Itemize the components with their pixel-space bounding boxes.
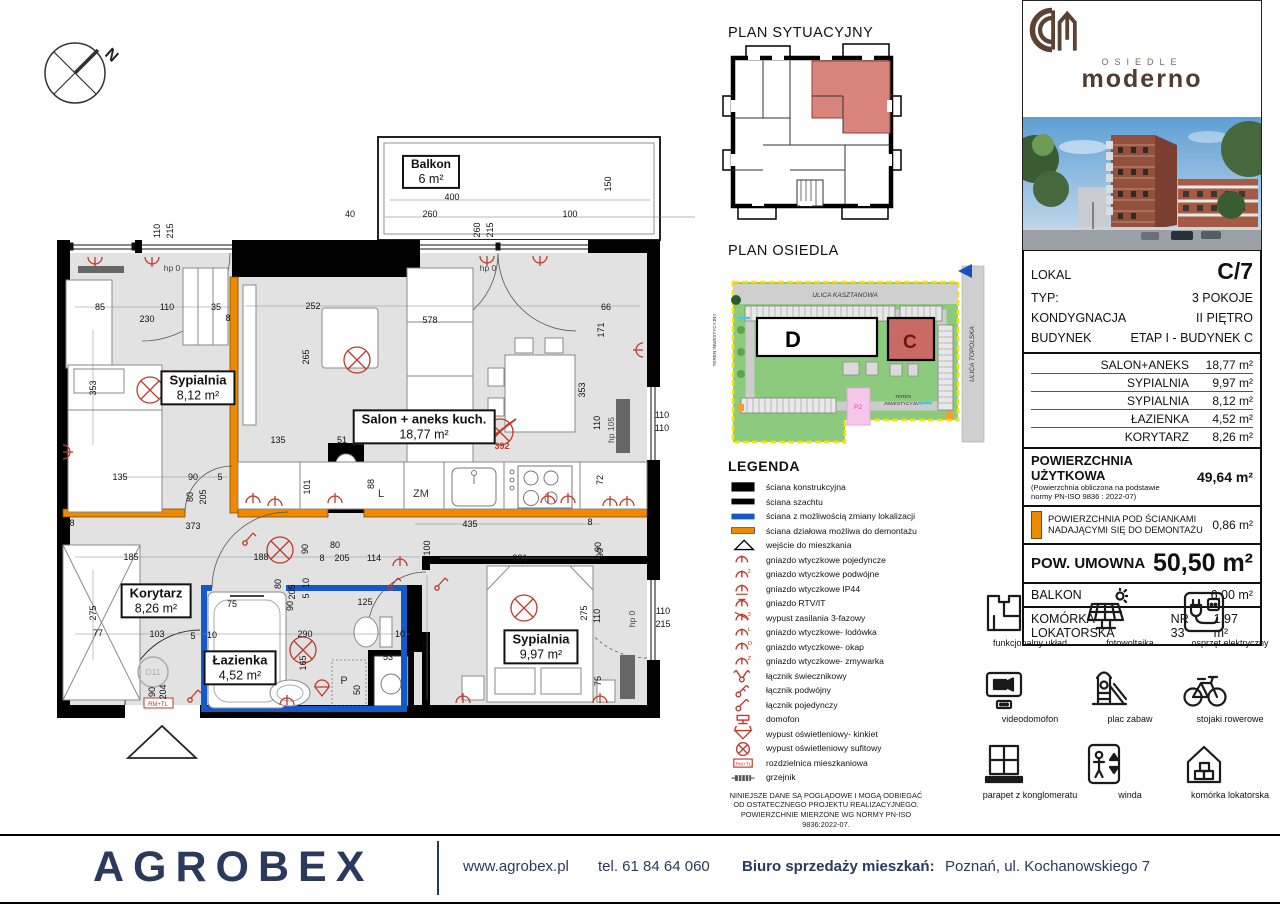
usable-area-value: 49,64 m² [1197,469,1253,485]
compass-north-label: N [101,45,121,65]
sock2-icon: 2 [728,567,758,582]
building-c-label: C [903,332,917,353]
wall-sz-icon [728,494,758,509]
room-area-row: SALON+ANEKS18,77 m² [1031,356,1253,374]
building-photo [1023,117,1261,250]
komorka-icon [1180,740,1228,788]
feature-item: winda [1080,740,1180,800]
legend-item-label: gniazdo wtyczkowe- okap [766,642,864,652]
building-d-label: D [785,327,801,352]
unit-info-row: KONDYGNACJAII PIĘTRO [1031,308,1253,328]
legend-item: ściana szachtu [728,495,933,510]
rozdz-icon: RM+TL [728,755,758,770]
contract-area-box: POW. UMOWNA 50,50 m² [1022,543,1262,584]
feature-label: winda [1080,790,1180,800]
legend-item-label: ściana konstrukcyjna [766,482,846,492]
demountable-label: POWIERZCHNIA POD ŚCIANKAMI NADAJĄCYMI SI… [1048,514,1206,537]
legend-item: łącznik pojedynczy [728,698,933,713]
unit-info-rows: LOKALC/7TYP:3 POKOJEKONDYGNACJAII PIĘTRO… [1031,255,1253,348]
video-icon [980,664,1028,712]
demountable-area-box: POWIERZCHNIA POD ŚCIANKAMI NADAJĄCYMI SI… [1022,505,1262,545]
feature-item: stojaki rowerowe [1180,664,1280,724]
plan-sytuacyjny-drawing [723,44,901,219]
room-area-name: SYPIALNIA [1127,376,1189,390]
info-value: ETAP I - BUDYNEK C [1131,331,1253,345]
agrobex-logo: AGROBEX [93,843,373,892]
room-area-row: SYPIALNIA8,12 m² [1031,392,1253,410]
wall-blue-icon [728,509,758,524]
usable-area-label: POWIERZCHNIA UŻYTKOWA [1031,453,1197,483]
teren-left-label: TEREN INWESTYCYJNY [712,314,717,367]
feature-item: videodomofon [980,664,1080,724]
room-area-row: ŁAZIENKA4,52 m² [1031,410,1253,428]
legend-item: łącznik świecznikowy [728,669,933,684]
plan-osiedla-drawing: ULICA KASZTANOWA ULICA TOPOLSKA D C [712,264,984,442]
footer-website[interactable]: www.agrobex.pl [463,858,569,875]
legend-item: wypust oświetleniowy- kinkiet [728,727,933,742]
legend-item-label: ściana działowa możliwa do demontażu [766,526,917,536]
parapet-icon [980,740,1028,788]
legend-item: 3wypust zasilania 3-fazowy [728,611,933,626]
info-label: LOKAL [1031,268,1071,282]
svg-text:L: L [748,627,751,633]
room-area-value: 4,52 m² [1189,412,1253,426]
svg-text:Z: Z [748,656,752,662]
legend-item-label: łącznik pojedynczy [766,700,838,710]
usable-area-box: POWIERZCHNIA UŻYTKOWA (Powierzchnia obli… [1022,447,1262,507]
legend-item: ściana z możliwością zmiany lokalizacji [728,509,933,524]
brand-and-photo: OSIEDLE moderno [1022,0,1262,251]
swk-icon [728,668,758,683]
sufit-icon [728,741,758,756]
demountable-value: 0,86 m² [1212,518,1253,532]
feature-item: plac zabaw [1080,664,1180,724]
info-value: II PIĘTRO [1196,311,1253,325]
wall-k-icon [728,480,758,495]
brand-name-label: moderno [1023,65,1261,94]
right-panel: OSIEDLE moderno [1022,0,1262,646]
plan-sytuacyjny-title: PLAN SYTUACYJNY [728,25,873,41]
feature-label: fotowoltaika [1080,638,1180,648]
feature-label: funkcjonalny układ [980,638,1080,648]
sw2-icon [728,683,758,698]
feature-item: fotowoltaika [1080,588,1180,648]
legend-item-label: gniazdo wtyczkowe IP44 [766,584,860,594]
legend-item-label: wypust oświetleniowy- kinkiet [766,729,878,739]
footer: AGROBEX www.agrobex.pl tel. 61 84 64 060… [0,834,1280,904]
unit-info-box: LOKALC/7TYP:3 POKOJEKONDYGNACJAII PIĘTRO… [1022,249,1262,354]
faz3-icon: 3 [728,610,758,625]
legend-item-label: gniazdo wtyczkowe pojedyncze [766,555,886,565]
plan-osiedla-title: PLAN OSIEDLA [728,243,839,259]
room-areas-box: SALON+ANEKS18,77 m²SYPIALNIA9,97 m²SYPIA… [1022,352,1262,449]
legend-item-label: gniazdo RTV/IT [766,598,826,608]
grzej-icon [728,770,758,785]
legend-item: gniazdo RTV/IT [728,596,933,611]
legend-item: Zgniazdo wtyczkowe- zmywarka [728,654,933,669]
svg-text:O: O [748,641,753,647]
legend-title: LEGENDA [728,458,933,474]
zmyw-icon: Z [728,654,758,669]
info-label: KONDYGNACJA [1031,311,1126,325]
wall-or-icon [728,523,758,538]
legend-item-label: domofon [766,714,799,724]
feature-item: funkcjonalny układ [980,588,1080,648]
d11-label: D11 [146,667,161,677]
moderno-monogram-icon [1023,5,1081,55]
winda-icon [1080,740,1128,788]
footer-divider [437,841,439,895]
street-kasztanowa-label: ULICA KASZTANOWA [812,292,878,299]
legend-item-label: grzejnik [766,772,796,782]
svg-text:3: 3 [748,612,751,618]
legend-item: wejście do mieszkania [728,538,933,553]
info-label: BUDYNEK [1031,331,1091,345]
legend-item-label: gniazdo wtyczkowe- zmywarka [766,656,884,666]
zabaw-icon [1080,664,1128,712]
legend-item: grzejnik [728,770,933,785]
rmtl-badge: RM+TL [148,702,169,708]
brand-logo: OSIEDLE moderno [1023,1,1261,117]
teren-bottom-label-1: TEREN [895,394,912,400]
kink-icon [728,726,758,741]
page: N [0,0,1280,905]
feature-item: osprzęt elektryczny [1180,588,1280,648]
legend-item-label: ściana szachtu [766,497,823,507]
legend-item: domofon [728,712,933,727]
feature-label: osprzęt elektryczny [1180,638,1280,648]
balcony-outline [378,137,695,240]
room-area-name: KORYTARZ [1125,430,1189,444]
room-area-name: ŁAZIENKA [1131,412,1189,426]
legend: LEGENDA ściana konstrukcyjnaściana szach… [728,458,933,830]
feature-label: komórka lokatorska [1180,790,1280,800]
feature-label: stojaki rowerowe [1180,714,1280,724]
room-area-row: KORYTARZ8,26 m² [1031,428,1253,445]
sock-icon [728,552,758,567]
uklad-icon [980,588,1028,636]
legend-item: RM+TLrozdzielnica mieszkaniowa [728,756,933,771]
foto-icon [1080,588,1128,636]
legend-item-label: łącznik podwójny [766,685,831,695]
room-area-value: 8,12 m² [1189,394,1253,408]
room-area-name: SYPIALNIA [1127,394,1189,408]
room-area-row: SYPIALNIA9,97 m² [1031,374,1253,392]
compass-icon: N [45,43,121,103]
legend-item: wypust oświetleniowy sufitowy [728,741,933,756]
features-grid: funkcjonalny układfotowoltaikaosprzęt el… [980,588,1280,800]
legend-item: Lgniazdo wtyczkowe- lodówka [728,625,933,640]
unit-info-row: BUDYNEKETAP I - BUDYNEK C [1031,328,1253,348]
building-d [757,318,877,356]
sw1-icon [728,697,758,712]
info-value: C/7 [1217,258,1253,285]
info-label: TYP: [1031,291,1059,305]
room-area-name: SALON+ANEKS [1101,358,1189,372]
footer-office-label: Biuro sprzedaży mieszkań: [742,858,935,875]
legend-item-label: gniazdo wtyczkowe podwójne [766,569,879,579]
osprzet-icon [1180,588,1228,636]
rtv-icon [728,596,758,611]
unit-info-row: LOKALC/7 [1031,255,1253,288]
contract-area-value: 50,50 m² [1153,549,1253,578]
feature-label: videodomofon [980,714,1080,724]
entrance-triangle [128,726,196,758]
room-area-value: 18,77 m² [1189,358,1253,372]
legend-item: gniazdo wtyczkowe pojedyncze [728,553,933,568]
feature-item: komórka lokatorska [1180,740,1280,800]
legend-item: gniazdo wtyczkowe IP44 [728,582,933,597]
feature-item: parapet z konglomeratu [980,740,1080,800]
legend-item: ściana konstrukcyjna [728,480,933,495]
room-areas-rows: SALON+ANEKS18,77 m²SYPIALNIA9,97 m²SYPIA… [1031,356,1253,445]
footer-phone[interactable]: tel. 61 84 64 060 [598,858,710,875]
footer-office-address: Poznań, ul. Kochanowskiego 7 [945,858,1150,875]
legend-item-label: wejście do mieszkania [766,540,852,550]
usable-area-note: (Powierzchnia obliczona na podstawie nor… [1031,483,1197,501]
svg-text:2: 2 [748,569,751,575]
unit-info-row: TYP:3 POKOJE [1031,288,1253,308]
legend-disclaimer: NINIEJSZE DANE SĄ POGLĄDOWE I MOGĄ ODBIE… [728,791,924,831]
street-topolska-label: ULICA TOPOLSKA [969,326,976,382]
legend-item: 2gniazdo wtyczkowe podwójne [728,567,933,582]
legend-item: Ogniazdo wtyczkowe- okap [728,640,933,655]
rower-icon [1180,664,1228,712]
floorplan: D11 RM+TL 392 [57,137,695,758]
legend-item-label: łącznik świecznikowy [766,671,847,681]
legend-item: ściana działowa możliwa do demontażu [728,524,933,539]
okap-icon: O [728,639,758,654]
legend-item-label: wypust oświetleniowy sufitowy [766,743,882,753]
legend-item: łącznik podwójny [728,683,933,698]
svg-text:RM+TL: RM+TL [736,762,752,768]
legend-item-label: rozdzielnica mieszkaniowa [766,758,868,768]
dom-icon [728,712,758,727]
info-value: 3 POKOJE [1192,291,1253,305]
legend-item-label: gniazdo wtyczkowe- lodówka [766,627,877,637]
entry-icon [728,538,758,553]
orange-wall-swatch [1031,511,1042,539]
sockip-icon [728,581,758,596]
room-area-value: 9,97 m² [1189,376,1253,390]
legend-list: ściana konstrukcyjnaściana szachtuściana… [728,480,933,785]
p2-label: P2 [854,404,862,411]
lod-icon: L [728,625,758,640]
contract-area-label: POW. UMOWNA [1031,555,1145,572]
legend-item-label: ściana z możliwością zmiany lokalizacji [766,511,915,521]
feature-label: plac zabaw [1080,714,1180,724]
feature-label: parapet z konglomeratu [980,790,1080,800]
room-area-value: 8,26 m² [1189,430,1253,444]
teren-bottom-label-2: INWESTYCYJNY [884,401,922,407]
legend-item-label: wypust zasilania 3-fazowy [766,613,865,623]
